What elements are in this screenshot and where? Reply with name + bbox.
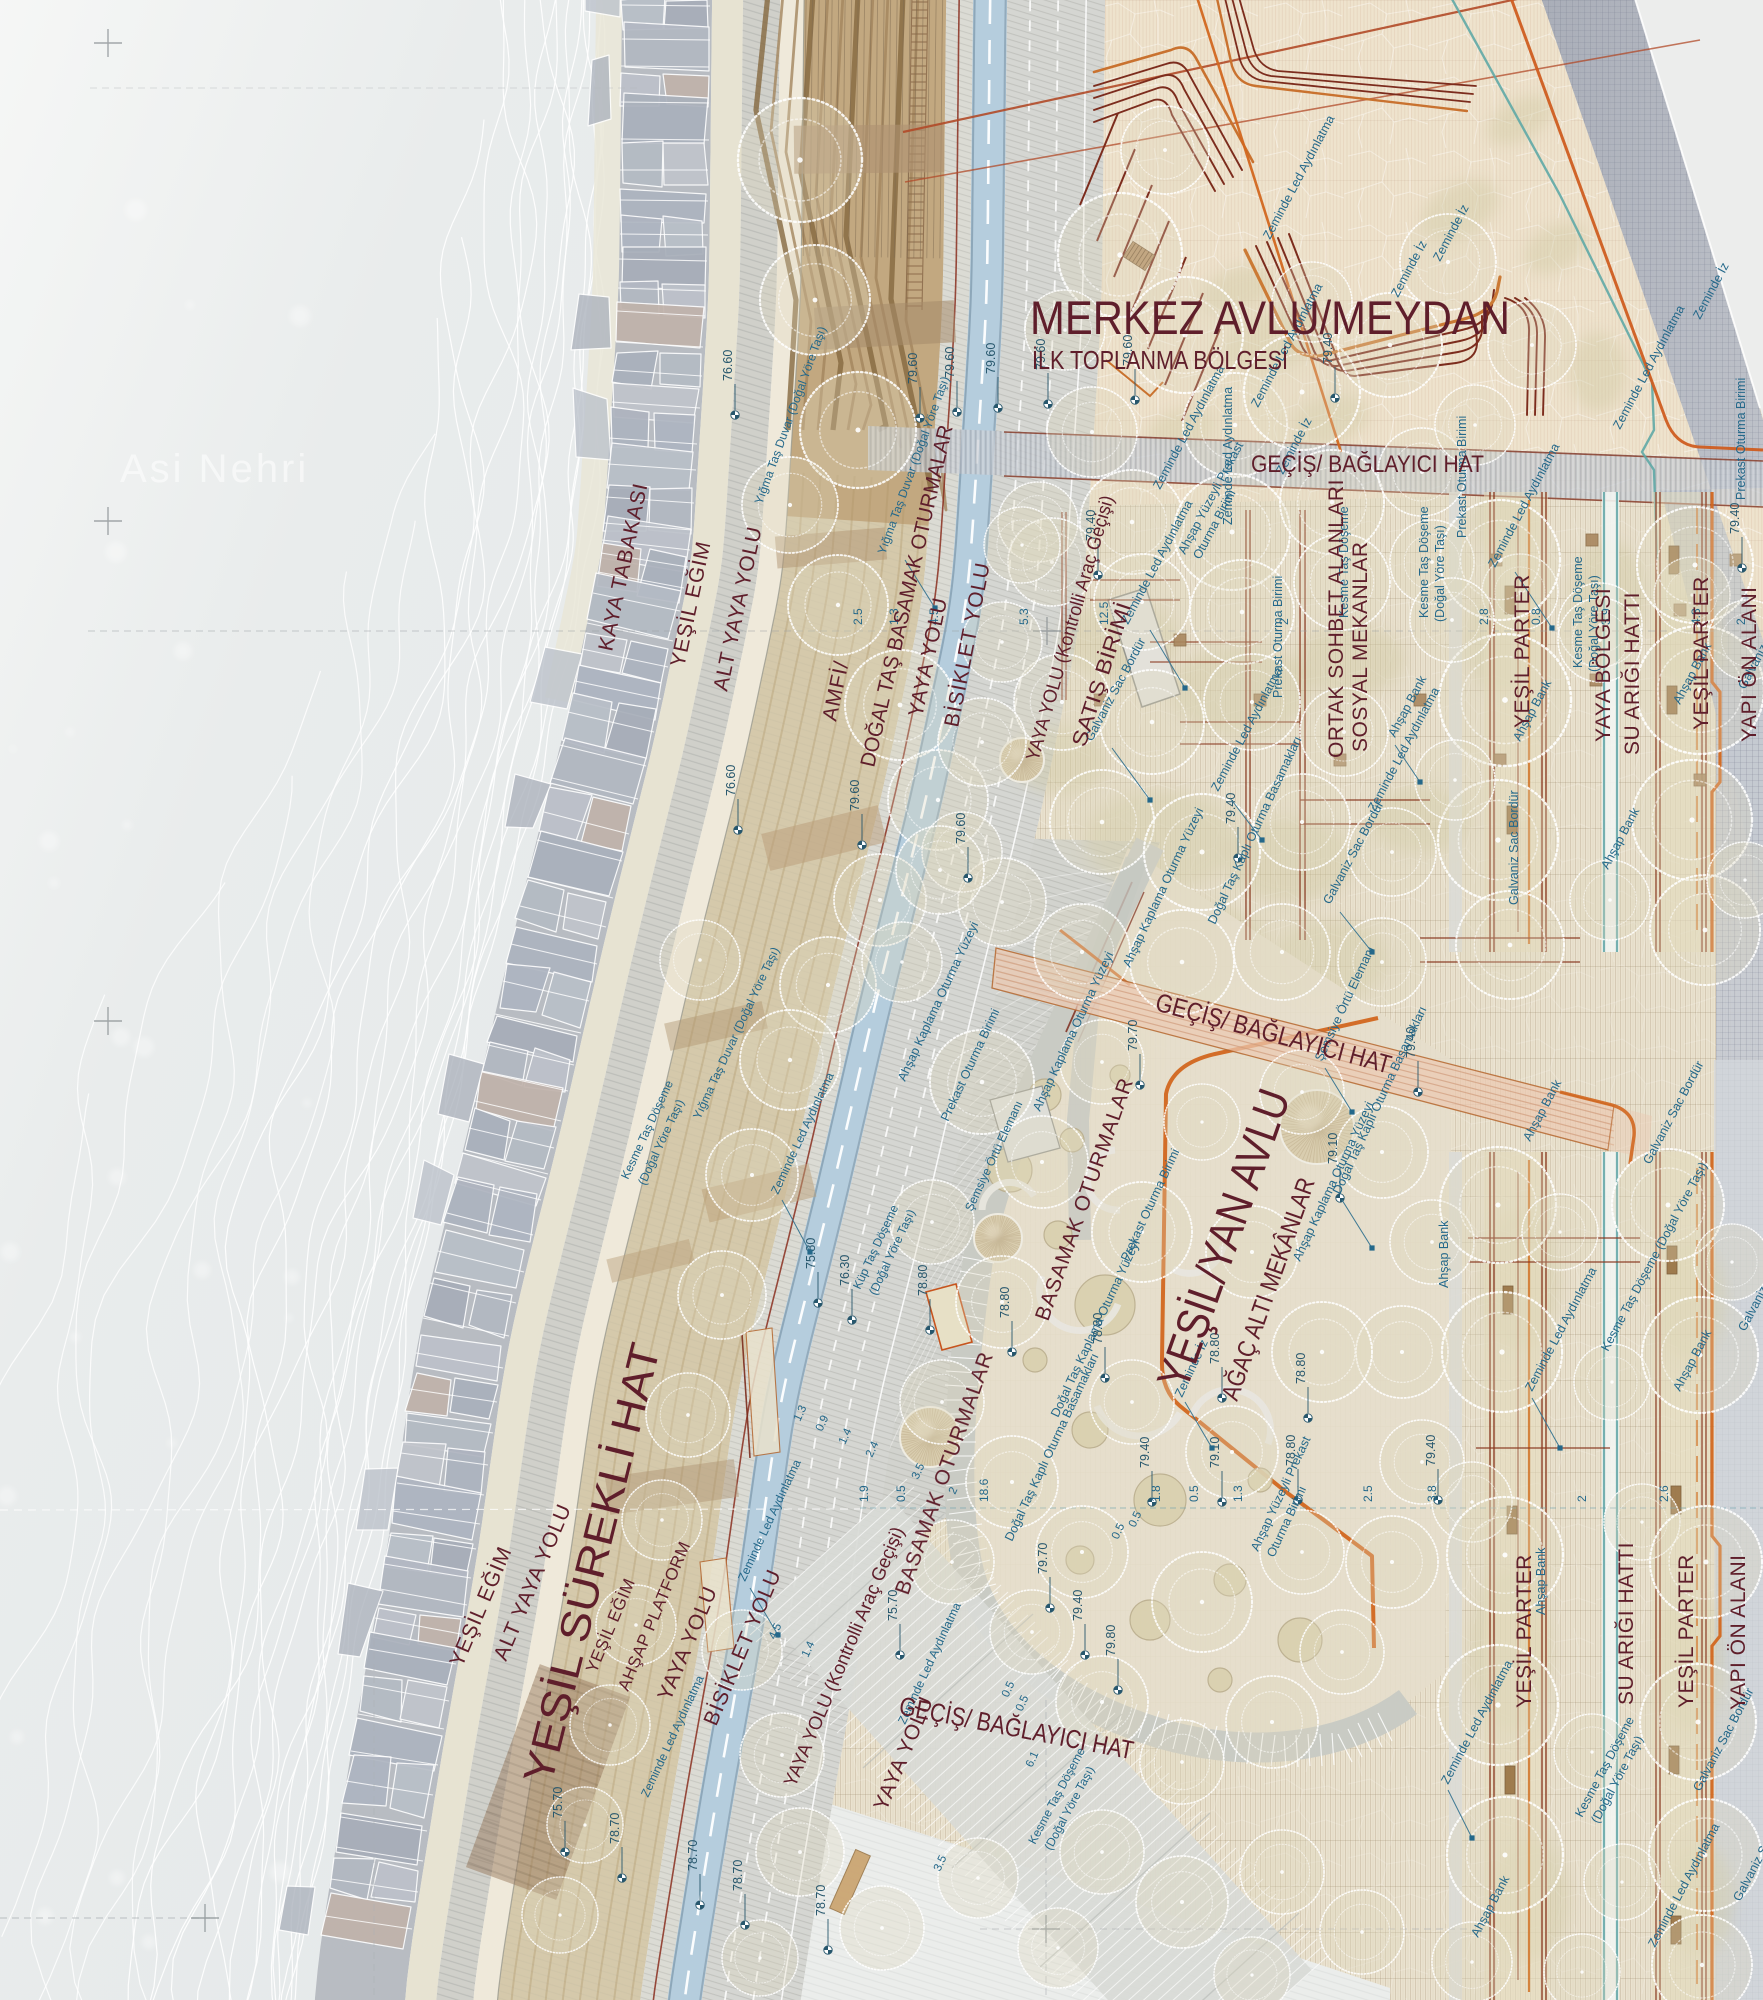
svg-text:YAYA BÖLGESİ: YAYA BÖLGESİ: [1592, 588, 1615, 742]
svg-text:YEŞİL PARTER: YEŞİL PARTER: [1690, 576, 1713, 730]
svg-text:YAPI ÖN ALANI: YAPI ÖN ALANI: [1727, 1555, 1750, 1711]
svg-text:SU ARIĞI HATTI: SU ARIĞI HATTI: [1615, 1542, 1638, 1705]
svg-text:79.10: 79.10: [1208, 1437, 1222, 1468]
svg-text:79.40: 79.40: [1728, 503, 1742, 534]
svg-text:Asi Nehri: Asi Nehri: [120, 447, 309, 491]
svg-text:2.6: 2.6: [1657, 1485, 1671, 1502]
svg-text:5.3: 5.3: [1017, 608, 1031, 625]
svg-text:0.5: 0.5: [894, 1485, 908, 1502]
svg-text:İLK TOPLANMA BÖLGESİ: İLK TOPLANMA BÖLGESİ: [1032, 345, 1288, 375]
svg-text:MERKEZ AVLU/MEYDAN: MERKEZ AVLU/MEYDAN: [1030, 291, 1510, 344]
svg-text:79.60: 79.60: [943, 347, 957, 378]
svg-text:79.60: 79.60: [984, 343, 998, 374]
svg-text:YAPI ÖN ALANI: YAPI ÖN ALANI: [1738, 587, 1761, 743]
svg-text:78.70: 78.70: [686, 1840, 700, 1871]
svg-text:(Doğal Yöre Taşı): (Doğal Yöre Taşı): [1433, 525, 1447, 622]
svg-text:0.5: 0.5: [1187, 1485, 1201, 1502]
svg-text:75.70: 75.70: [551, 1787, 565, 1818]
svg-text:Kesme Taş Döşeme: Kesme Taş Döşeme: [1571, 556, 1585, 668]
svg-text:ORTAK SOHBET ALANLARI: ORTAK SOHBET ALANLARI: [1325, 479, 1348, 758]
svg-text:79.40: 79.40: [1071, 1590, 1085, 1621]
svg-text:2.5: 2.5: [851, 608, 865, 625]
svg-text:78.80: 78.80: [916, 1265, 930, 1296]
svg-text:GEÇİŞ/ BAĞLAYICI HAT: GEÇİŞ/ BAĞLAYICI HAT: [1251, 451, 1484, 478]
svg-text:79.40: 79.40: [1138, 1437, 1152, 1468]
svg-text:79.60: 79.60: [954, 813, 968, 844]
svg-text:78.70: 78.70: [814, 1885, 828, 1916]
svg-text:SU ARIĞI HATTI: SU ARIĞI HATTI: [1621, 592, 1644, 755]
svg-text:Prekast Oturma Birimi: Prekast Oturma Birimi: [1734, 378, 1748, 500]
svg-text:79.80: 79.80: [1104, 1625, 1118, 1656]
svg-text:2.8: 2.8: [1477, 608, 1491, 625]
svg-text:79.60: 79.60: [848, 780, 862, 811]
svg-text:1.3: 1.3: [1231, 1485, 1245, 1502]
svg-text:Kesme Taş Döşeme: Kesme Taş Döşeme: [1417, 506, 1431, 618]
svg-text:2: 2: [1575, 1495, 1589, 1502]
svg-text:YEŞİL PARTER: YEŞİL PARTER: [1511, 574, 1534, 728]
svg-text:Ahşap Bank: Ahşap Bank: [1437, 1220, 1451, 1288]
svg-text:76.60: 76.60: [724, 765, 738, 796]
svg-text:3.8: 3.8: [1425, 1485, 1439, 1502]
svg-text:YEŞİL PARTER: YEŞİL PARTER: [1675, 1554, 1698, 1708]
svg-text:SOSYAL MEKANLAR: SOSYAL MEKANLAR: [1349, 541, 1372, 752]
svg-text:Galvaniz Sac Bordür: Galvaniz Sac Bordür: [1507, 790, 1521, 905]
svg-text:78.80: 78.80: [998, 1287, 1012, 1318]
svg-text:79.60: 79.60: [906, 353, 920, 384]
svg-text:79.40: 79.40: [1424, 1435, 1438, 1466]
svg-text:1.8: 1.8: [1149, 1485, 1163, 1502]
svg-text:76.60: 76.60: [721, 350, 735, 381]
svg-text:78.70: 78.70: [608, 1813, 622, 1844]
svg-text:2: 2: [1277, 618, 1291, 625]
svg-text:18.6: 18.6: [977, 1478, 991, 1502]
svg-text:79.70: 79.70: [1036, 1543, 1050, 1574]
svg-text:78.70: 78.70: [731, 1860, 745, 1891]
svg-text:79.70: 79.70: [1126, 1020, 1140, 1051]
svg-text:2.5: 2.5: [1361, 1485, 1375, 1502]
svg-text:78.80: 78.80: [1294, 1353, 1308, 1384]
svg-text:76.30: 76.30: [838, 1255, 852, 1286]
svg-text:Ahşap Bank: Ahşap Bank: [1534, 1547, 1548, 1615]
svg-text:1.9: 1.9: [857, 1485, 871, 1502]
svg-text:75.70: 75.70: [886, 1590, 900, 1621]
svg-text:79.40: 79.40: [1224, 793, 1238, 824]
svg-text:YEŞİL PARTER: YEŞİL PARTER: [1513, 1554, 1536, 1708]
